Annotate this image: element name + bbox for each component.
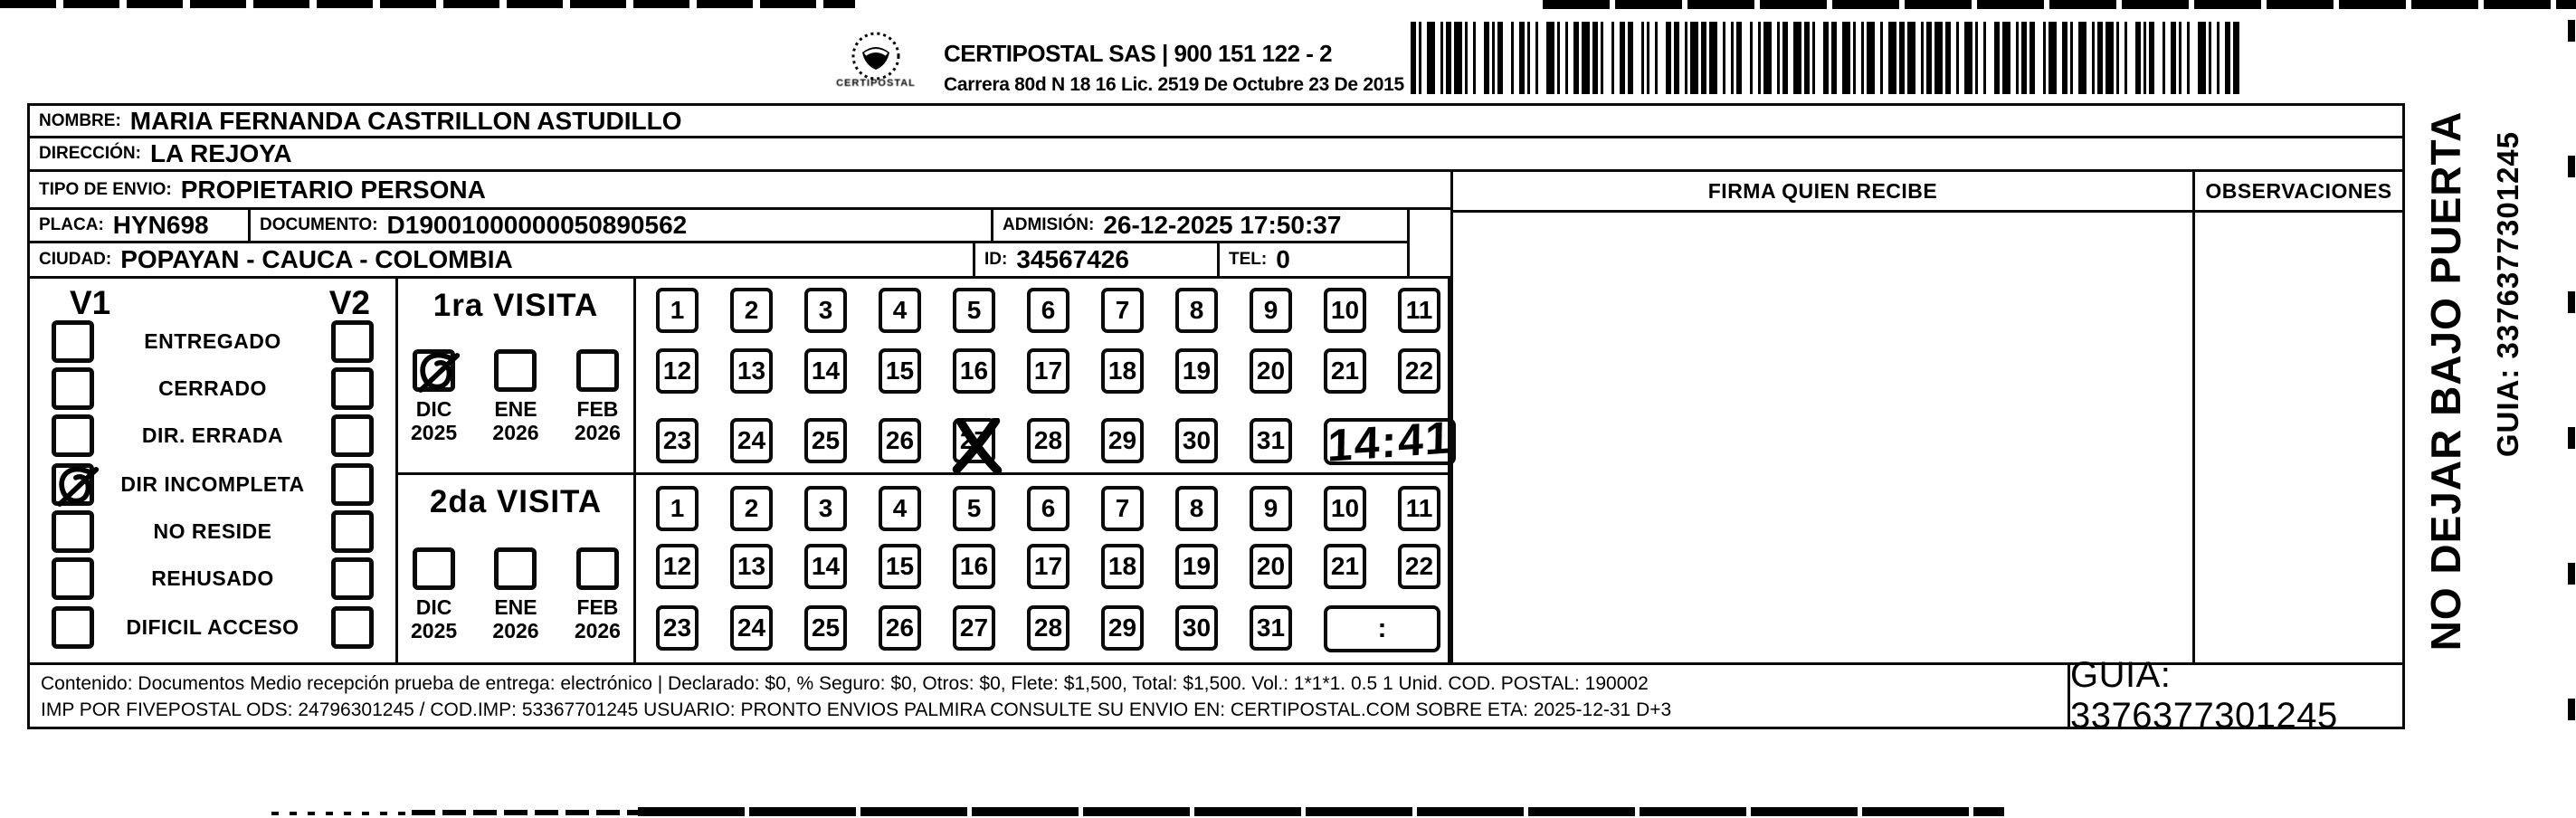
barcode-bar — [1907, 22, 1915, 94]
brand-block: CERTIPOSTAL SAS | 900 151 122 - 2 Carrer… — [944, 40, 1404, 96]
side-guia-text: GUIA: 3376377301245 — [2488, 145, 2528, 443]
documento-value: D19001000000050890562 — [387, 211, 688, 240]
ciudad-cell: CIUDAD: POPAYAN - CAUCA - COLOMBIA — [27, 241, 975, 279]
day-7[interactable]: 7 — [1101, 486, 1144, 531]
barcode-bar — [1690, 22, 1698, 94]
scan-artifact-edge-dash — [2568, 563, 2575, 585]
day-19[interactable]: 19 — [1175, 348, 1218, 394]
v1-checkbox[interactable] — [52, 367, 94, 410]
status-option-entregado: ENTREGADO — [52, 319, 374, 364]
admision-cell: ADMISIÓN: 26-12-2025 17:50:37 — [991, 207, 1410, 243]
scan-artifact-edge-dash — [2568, 20, 2575, 42]
side-warning-text: NO DEJAR BAJO PUERTA — [2410, 125, 2481, 637]
day-3[interactable]: 3 — [804, 486, 847, 531]
day-26[interactable]: 26 — [879, 605, 921, 651]
firma-header: FIRMA QUIEN RECIBE — [1453, 172, 2192, 213]
day-25[interactable]: 25 — [804, 605, 847, 651]
visit-months-1: DIC2025ENE2026FEB2026 — [411, 547, 621, 642]
first-visit-title: 1ra VISITA — [398, 288, 633, 324]
day-19[interactable]: 19 — [1175, 544, 1218, 589]
status-option-cerrado: CERRADO — [52, 366, 374, 411]
id-label: ID: — [984, 250, 1007, 270]
day-6[interactable]: 6 — [1027, 288, 1069, 333]
day-25[interactable]: 25 — [804, 418, 847, 463]
day-3[interactable]: 3 — [804, 288, 847, 333]
status-box: V1 V2 ENTREGADOCERRADODIR. ERRADADIR INC… — [27, 276, 398, 665]
shipment-barcode — [1411, 22, 2239, 94]
barcode-bar — [2078, 22, 2086, 94]
month-label: DIC2025 — [411, 595, 457, 642]
id-value: 34567426 — [1016, 245, 1129, 274]
day-12[interactable]: 12 — [656, 544, 699, 589]
observaciones-space[interactable] — [2195, 213, 2402, 703]
observaciones-area: OBSERVACIONES — [2192, 169, 2405, 665]
tipo-envio-value: PROPIETARIO PERSONA — [181, 176, 486, 204]
day-27[interactable]: 27 — [953, 418, 995, 463]
barcode-bar — [1964, 22, 1972, 94]
first-visit-box: 1ra VISITA DIC2025ENE2026FEB2026 — [395, 276, 636, 475]
day-18[interactable]: 18 — [1101, 348, 1144, 394]
observaciones-header: OBSERVACIONES — [2195, 172, 2402, 213]
barcode-space — [2127, 22, 2135, 94]
ciudad-value: POPAYAN - CAUCA - COLOMBIA — [120, 245, 513, 274]
day-5[interactable]: 5 — [953, 288, 995, 333]
nombre-value: MARIA FERNANDA CASTRILLON ASTUDILLO — [130, 107, 682, 136]
barcode-bar — [2105, 22, 2114, 94]
status-option-label: DIFICIL ACCESO — [94, 615, 331, 640]
day-2[interactable]: 2 — [730, 486, 773, 531]
day-11[interactable]: 11 — [1398, 288, 1440, 333]
month-ene-2026: ENE2026 — [492, 349, 538, 444]
barcode-bar — [1888, 22, 1896, 94]
documento-cell: DOCUMENTO: D19001000000050890562 — [248, 207, 993, 243]
day-24[interactable]: 24 — [730, 418, 773, 463]
scan-artifact-edge-dash — [2568, 156, 2575, 177]
certipostal-logo: CERTIPOSTAL — [840, 31, 912, 96]
month-label: FEB2026 — [575, 397, 621, 444]
barcode-bar — [1763, 22, 1772, 94]
nombre-label: NOMBRE: — [39, 111, 121, 131]
v1-checkbox[interactable] — [52, 606, 94, 649]
admision-label: ADMISIÓN: — [1003, 215, 1094, 235]
day-26[interactable]: 26 — [879, 418, 921, 463]
v2-checkbox[interactable] — [331, 463, 374, 506]
firma-signature-space[interactable] — [1453, 213, 2192, 703]
day-28[interactable]: 28 — [1027, 605, 1069, 651]
footer-line2: IMP POR FIVEPOSTAL ODS: 24796301245 / CO… — [41, 697, 2067, 723]
day-22[interactable]: 22 — [1398, 348, 1440, 394]
month-checkbox[interactable] — [576, 547, 619, 590]
logo-caption: CERTIPOSTAL — [832, 78, 919, 89]
day-15[interactable]: 15 — [879, 544, 921, 589]
day-23[interactable]: 23 — [656, 605, 699, 651]
status-option-label: DIR. ERRADA — [94, 423, 331, 448]
documento-label: DOCUMENTO: — [260, 215, 378, 235]
scan-artifact-top-bar-left — [0, 0, 855, 8]
status-option-label: CERRADO — [94, 376, 331, 401]
barcode-bar — [1842, 22, 1850, 94]
day-16[interactable]: 16 — [953, 544, 995, 589]
month-feb-2026: FEB2026 — [575, 349, 621, 444]
v1-checkbox[interactable] — [52, 557, 94, 600]
second-visit-title: 2da VISITA — [398, 484, 633, 520]
barcode-bar — [1793, 22, 1801, 94]
guia-box: GUIA: 3376377301245 — [2067, 662, 2405, 729]
scan-artifact-edge-dash — [2568, 427, 2575, 449]
barcode-bar — [2198, 22, 2206, 94]
month-feb-2026: FEB2026 — [575, 547, 621, 642]
barcode-bar — [1709, 22, 1717, 94]
tipo-envio-cell: TIPO DE ENVIO: PROPIETARIO PERSONA — [27, 169, 1453, 210]
day-5[interactable]: 5 — [953, 486, 995, 531]
barcode-bar — [2048, 22, 2057, 94]
guia-number: GUIA: 3376377301245 — [2070, 655, 2402, 737]
barcode-space — [2190, 22, 2198, 94]
status-option-label: DIR INCOMPLETA — [94, 472, 331, 497]
barcode-bar — [2002, 22, 2010, 94]
status-option-dir-errada: DIR. ERRADA — [52, 413, 374, 458]
barcode-bar — [1867, 22, 1875, 94]
v1-checkbox[interactable] — [52, 414, 94, 457]
time-colon: : — [1378, 613, 1387, 644]
scan-artifact-top-bar-right — [1543, 0, 2576, 9]
v2-checkbox[interactable] — [331, 606, 374, 649]
barcode-space — [1815, 22, 1823, 94]
day-29[interactable]: 29 — [1101, 418, 1144, 463]
day-13[interactable]: 13 — [730, 348, 773, 394]
day-4[interactable]: 4 — [879, 486, 921, 531]
barcode-bar — [1454, 22, 1462, 94]
day-7[interactable]: 7 — [1101, 288, 1144, 333]
day-21[interactable]: 21 — [1324, 544, 1366, 589]
nombre-row: NOMBRE: MARIA FERNANDA CASTRILLON ASTUDI… — [27, 103, 2405, 138]
day-27[interactable]: 27 — [953, 605, 995, 651]
day-30[interactable]: 30 — [1175, 605, 1218, 651]
direccion-value: LA REJOYA — [150, 139, 292, 168]
day-row: 1213141516171819202122 — [656, 348, 1440, 394]
scan-artifact-bottom-dashes — [412, 810, 642, 815]
month-dic-2025: DIC2025 — [411, 547, 457, 642]
day-16[interactable]: 16 — [953, 348, 995, 394]
time-box[interactable]: 14:41 — [1324, 418, 1456, 465]
day-6[interactable]: 6 — [1027, 486, 1069, 531]
month-checkbox[interactable] — [494, 547, 537, 590]
month-label: FEB2026 — [575, 595, 621, 642]
v2-checkbox[interactable] — [331, 557, 374, 600]
day-9[interactable]: 9 — [1250, 288, 1292, 333]
tel-label: TEL: — [1229, 250, 1267, 270]
placa-value: HYN698 — [113, 211, 209, 240]
firma-area: FIRMA QUIEN RECIBE — [1450, 169, 2195, 665]
tipo-envio-label: TIPO DE ENVIO: — [39, 180, 172, 200]
day-29[interactable]: 29 — [1101, 605, 1144, 651]
day-28[interactable]: 28 — [1027, 418, 1069, 463]
scan-artifact-edge-dash — [2568, 291, 2575, 313]
month-label: DIC2025 — [411, 397, 457, 444]
brand-name: CERTIPOSTAL SAS | 900 151 122 - 2 — [944, 40, 1404, 68]
barcode-bar — [1546, 22, 1554, 94]
v1-checkbox[interactable] — [52, 320, 94, 363]
shipping-label-scan: SEC. TRANSITO Y TRA NSPORTE DE POPAYAN N… — [0, 0, 2576, 818]
day-8[interactable]: 8 — [1175, 288, 1218, 333]
day-row: 232425262728293031: — [656, 605, 1440, 652]
direccion-row: DIRECCIÓN: LA REJOYA — [27, 136, 2405, 172]
day-23[interactable]: 23 — [656, 418, 699, 463]
month-checkbox[interactable] — [413, 547, 455, 590]
month-label: ENE2026 — [492, 595, 538, 642]
day-1[interactable]: 1 — [656, 486, 699, 531]
visit-months-0: DIC2025ENE2026FEB2026 — [411, 349, 621, 444]
barcode-space — [1986, 22, 1994, 94]
tel-value: 0 — [1276, 245, 1290, 274]
month-checkbox[interactable] — [413, 349, 455, 392]
day-17[interactable]: 17 — [1027, 544, 1069, 589]
scan-artifact-bottom-bar — [638, 807, 2004, 816]
placa-label: PLACA: — [39, 215, 104, 235]
month-checkbox[interactable] — [494, 349, 537, 392]
barcode-space — [2154, 22, 2163, 94]
day-11[interactable]: 11 — [1398, 486, 1440, 531]
day-14[interactable]: 14 — [804, 348, 847, 394]
second-visit-box: 2da VISITA DIC2025ENE2026FEB2026 — [395, 472, 636, 665]
v2-checkbox[interactable] — [331, 320, 374, 363]
month-label: ENE2026 — [492, 397, 538, 444]
day-24[interactable]: 24 — [730, 605, 773, 651]
day-20[interactable]: 20 — [1250, 348, 1292, 394]
day-22[interactable]: 22 — [1398, 544, 1440, 589]
time-box[interactable]: : — [1324, 605, 1440, 652]
barcode-space — [1658, 22, 1666, 94]
day-31[interactable]: 31 — [1250, 605, 1292, 651]
day-row: 1213141516171819202122 — [656, 544, 1440, 589]
barcode-space — [1476, 22, 1484, 94]
day-21[interactable]: 21 — [1324, 348, 1366, 394]
v1-checkbox[interactable] — [52, 510, 94, 553]
status-option-label: NO RESIDE — [94, 519, 331, 544]
v2-checkbox[interactable] — [331, 414, 374, 457]
day-row: 1234567891011 — [656, 288, 1440, 333]
day-20[interactable]: 20 — [1250, 544, 1292, 589]
status-option-dir-incompleta: DIR INCOMPLETA — [52, 461, 374, 507]
barcode-space — [1538, 22, 1546, 94]
status-option-label: REHUSADO — [94, 566, 331, 591]
barcode-bar — [1582, 22, 1590, 94]
id-cell: ID: 34567426 — [973, 241, 1220, 279]
month-ene-2026: ENE2026 — [492, 547, 538, 642]
status-option-label: ENTREGADO — [94, 329, 331, 354]
barcode-space — [1633, 22, 1641, 94]
day-13[interactable]: 13 — [730, 544, 773, 589]
day-row: 23242526272829303114:41 — [656, 418, 1440, 465]
barcode-bar — [1934, 22, 1943, 94]
barcode-space — [1603, 22, 1611, 94]
month-checkbox[interactable] — [576, 349, 619, 392]
day-17[interactable]: 17 — [1027, 348, 1069, 394]
footer-line1: Contenido: Documentos Medio recepción pr… — [41, 671, 2067, 697]
status-option-dificil-acceso: DIFICIL ACCESO — [52, 604, 374, 650]
barcode-space — [2035, 22, 2043, 94]
day-30[interactable]: 30 — [1175, 418, 1218, 463]
day-9[interactable]: 9 — [1250, 486, 1292, 531]
day-18[interactable]: 18 — [1101, 544, 1144, 589]
scan-artifact-edge-dash — [2568, 699, 2575, 720]
day-15[interactable]: 15 — [879, 348, 921, 394]
barcode-space — [1742, 22, 1750, 94]
day-1[interactable]: 1 — [656, 288, 699, 333]
v1-checkbox[interactable] — [52, 463, 94, 506]
day-row: 1234567891011 — [656, 486, 1440, 531]
v2-checkbox[interactable] — [331, 510, 374, 553]
admision-value: 26-12-2025 17:50:37 — [1103, 211, 1341, 240]
day-10[interactable]: 10 — [1324, 288, 1366, 333]
day-10[interactable]: 10 — [1324, 486, 1366, 531]
barcode-bar — [2233, 22, 2239, 94]
tel-cell: TEL: 0 — [1217, 241, 1410, 279]
v1-column-label: V1 — [70, 284, 110, 322]
handwritten-x-mark — [951, 418, 1003, 472]
brand-address: Carrera 80d N 18 16 Lic. 2519 De Octubre… — [944, 74, 1404, 96]
month-dic-2025: DIC2025 — [411, 349, 457, 444]
v2-checkbox[interactable] — [331, 367, 374, 410]
second-visit-day-grid: 1234567891011121314151617181920212223242… — [633, 472, 1450, 665]
v2-column-label: V2 — [329, 284, 370, 322]
placa-cell: PLACA: HYN698 — [27, 207, 251, 243]
day-2[interactable]: 2 — [730, 288, 773, 333]
day-31[interactable]: 31 — [1250, 418, 1292, 463]
footer-info-cell: Contenido: Documentos Medio recepción pr… — [27, 662, 2070, 729]
day-14[interactable]: 14 — [804, 544, 847, 589]
direccion-label: DIRECCIÓN: — [39, 144, 141, 164]
day-12[interactable]: 12 — [656, 348, 699, 394]
scan-artifact-bottom-dots — [271, 812, 407, 815]
barcode-bar — [1427, 22, 1435, 94]
day-8[interactable]: 8 — [1175, 486, 1218, 531]
barcode-space — [1503, 22, 1511, 94]
day-4[interactable]: 4 — [879, 288, 921, 333]
ciudad-label: CIUDAD: — [39, 250, 111, 270]
status-option-rehusado: REHUSADO — [52, 556, 374, 601]
status-option-no-reside: NO RESIDE — [52, 509, 374, 554]
handwritten-time: 14:41 — [1327, 411, 1453, 472]
first-visit-day-grid: 1234567891011121314151617181920212223242… — [633, 276, 1450, 475]
